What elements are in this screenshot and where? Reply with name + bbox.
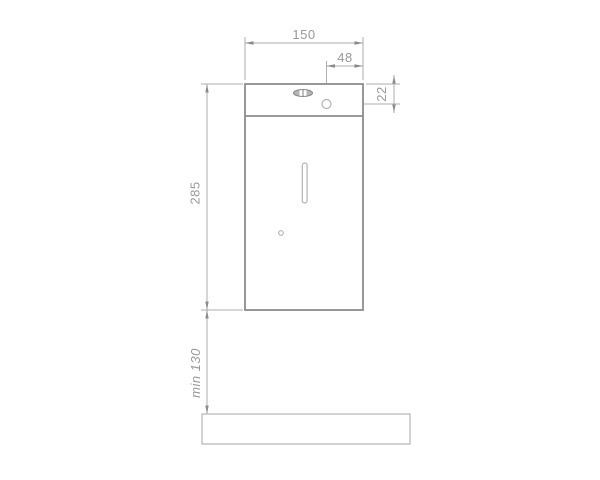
lid-hole (322, 100, 331, 109)
dimension-clearance-below: min 130 (188, 310, 209, 414)
technical-drawing-page: 150 48 22 285 (0, 0, 600, 480)
arrowhead-bottom (205, 406, 208, 415)
dispenser-installation-drawing: 150 48 22 285 (0, 0, 600, 480)
arrowhead-top (205, 310, 208, 319)
arrowhead-top (205, 84, 208, 93)
front-hole (279, 231, 284, 236)
arrowhead-bottom (392, 105, 395, 113)
arrowhead-left (245, 41, 254, 44)
dimension-label-hole-offset-vertical: 22 (374, 86, 389, 101)
arrowhead-left (327, 64, 336, 67)
dimension-label-width: 150 (292, 27, 315, 42)
arrowhead-bottom (205, 302, 208, 311)
dimension-body-height: 285 (188, 84, 244, 310)
arrowhead-right (355, 41, 364, 44)
counter-surface (202, 414, 410, 444)
dispenser-body (245, 84, 363, 310)
dimension-label-body-height: 285 (188, 181, 203, 204)
dimension-label-clearance-below: min 130 (188, 348, 203, 398)
dimension-label-hole-offset-horizontal: 48 (337, 50, 352, 65)
arrowhead-top (392, 76, 395, 84)
sight-window-slot (302, 163, 307, 203)
arrowhead-right (355, 64, 364, 67)
